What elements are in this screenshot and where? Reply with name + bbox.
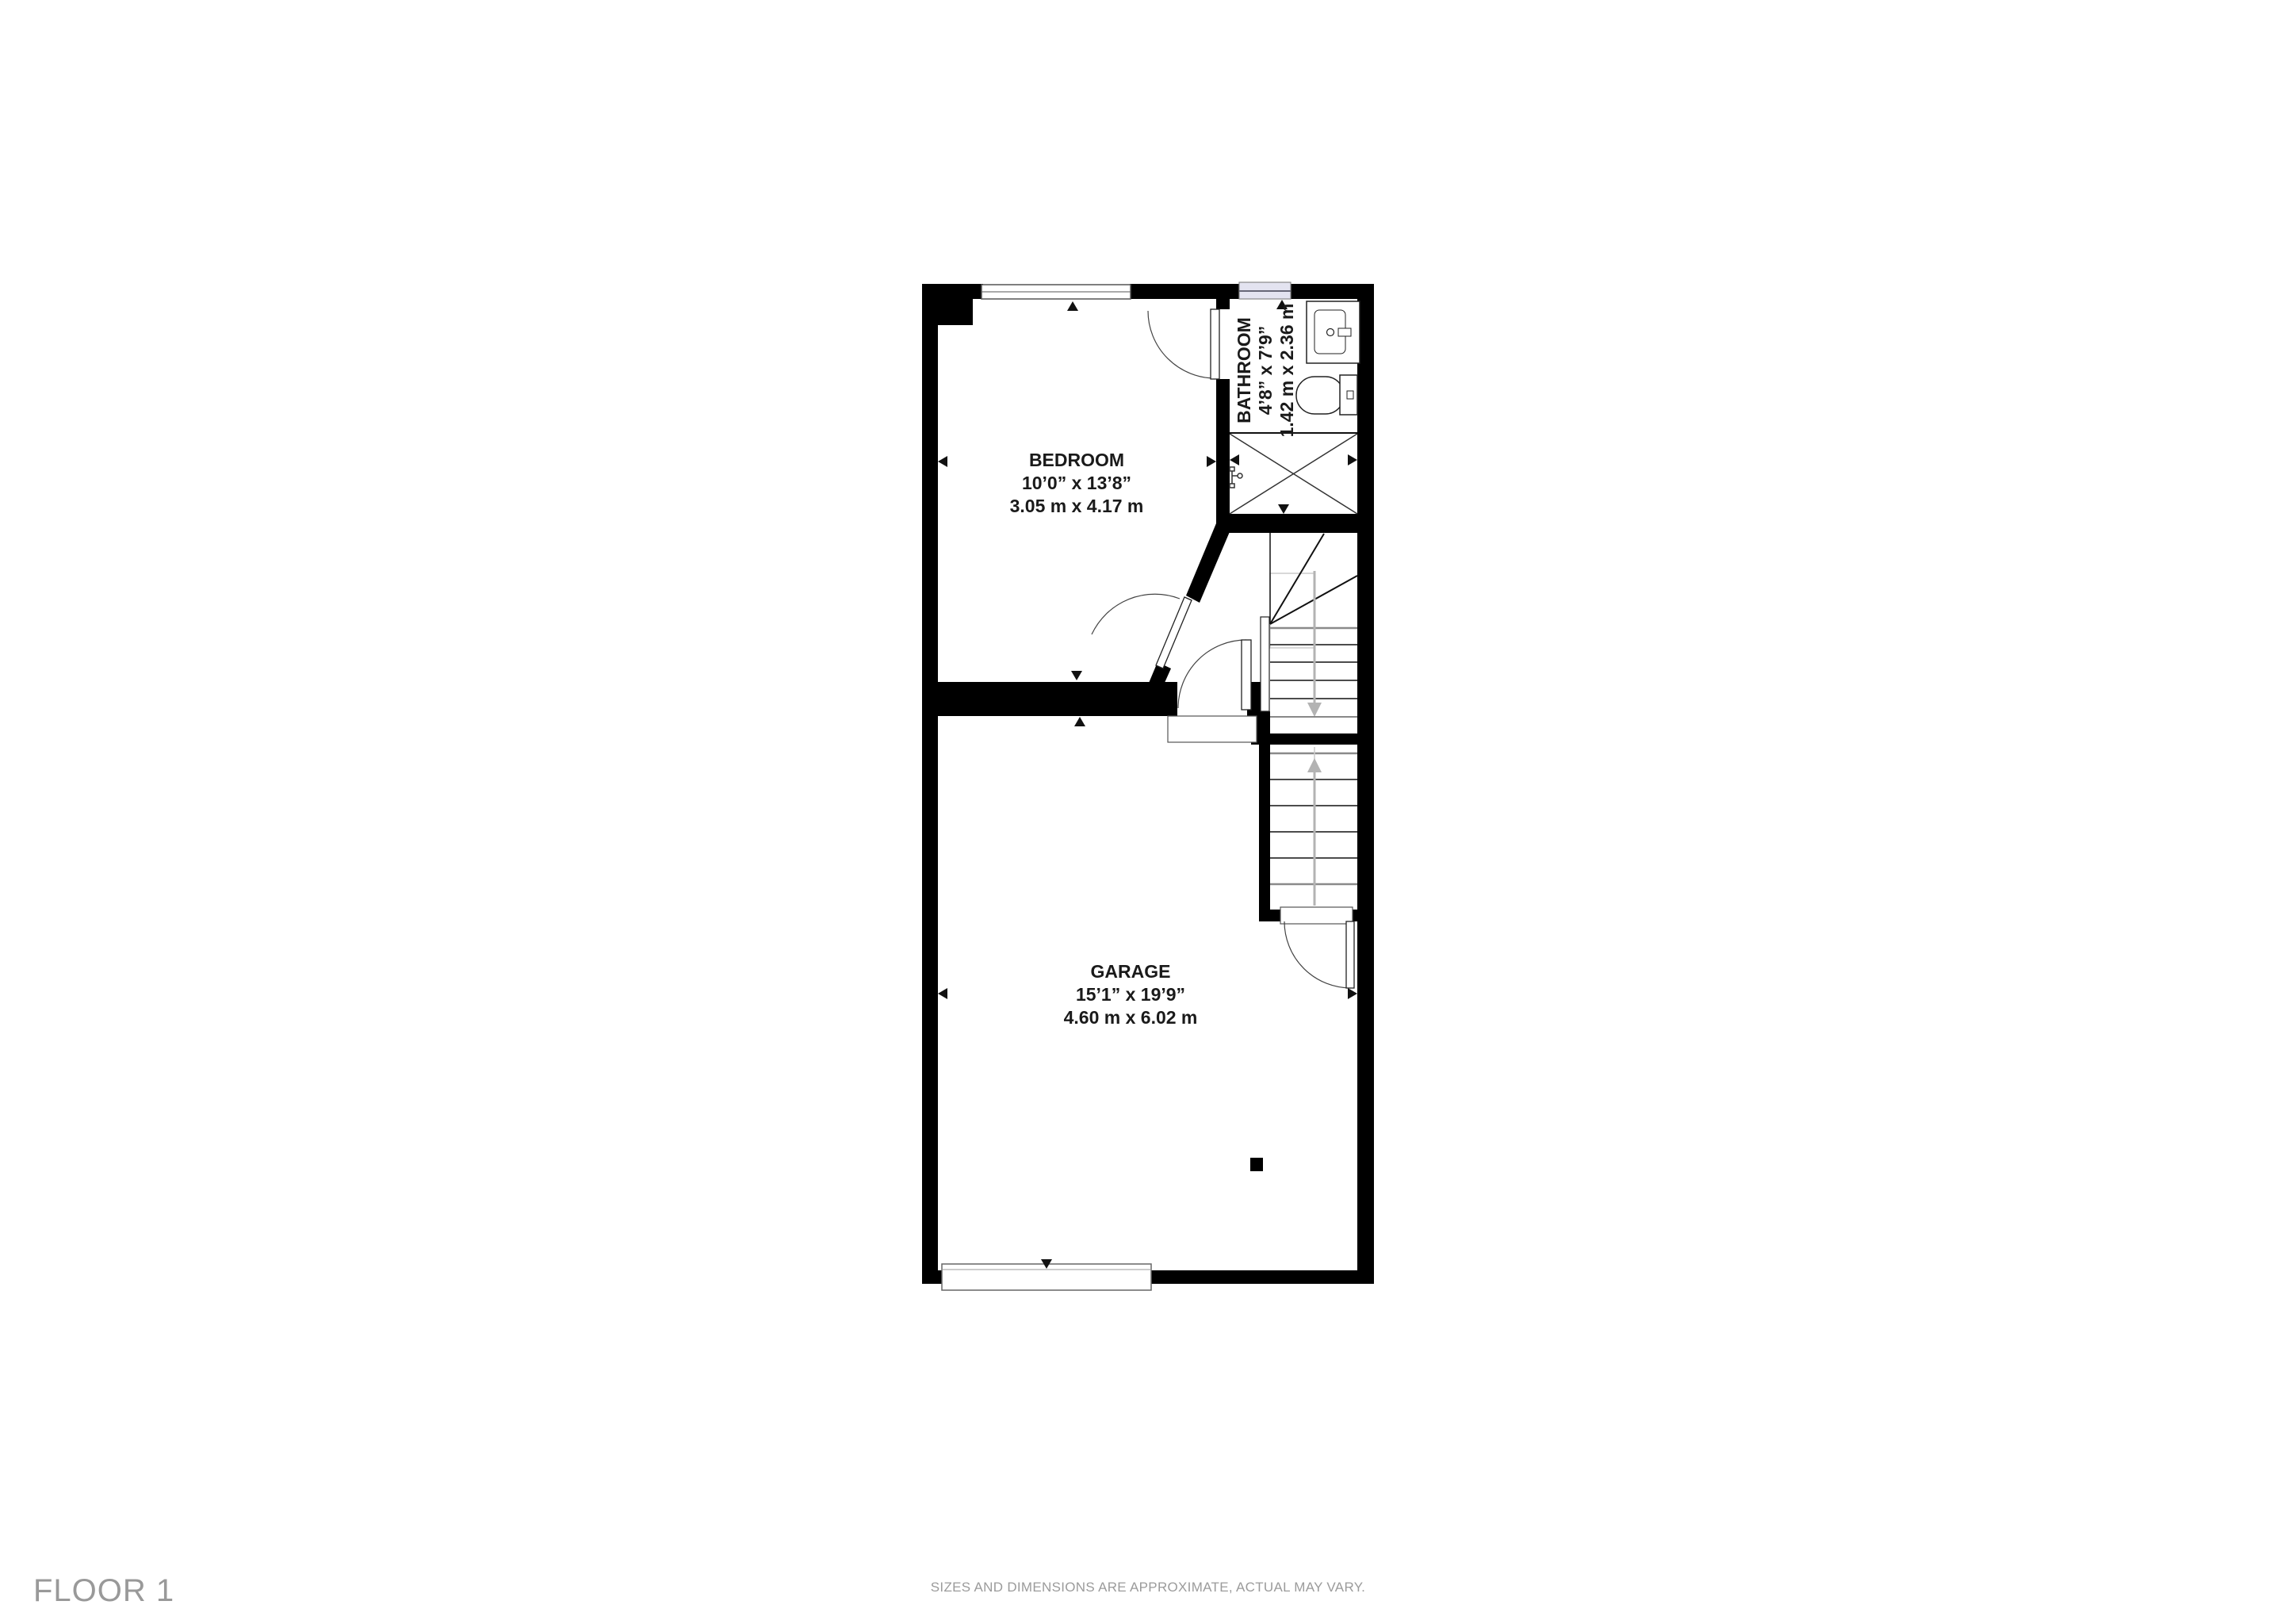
wall-left	[922, 284, 938, 1284]
stair-winder-1	[1270, 534, 1324, 624]
bathroom-name: BATHROOM	[1234, 317, 1254, 423]
wall-bed-bath-top	[1216, 299, 1230, 309]
bedroom-window	[982, 285, 1131, 299]
garage-post	[1250, 1158, 1263, 1171]
bedroom-name: BEDROOM	[1029, 450, 1124, 470]
stair-arrow-down	[1307, 571, 1322, 717]
stair-handrail	[1261, 617, 1269, 711]
bedroom-size-imperial: 10’0” x 13’8”	[1022, 473, 1131, 493]
stairs-garage-threshold	[1280, 907, 1353, 924]
bedroom-size-metric: 3.05 m x 4.17 m	[1010, 496, 1144, 516]
garage-name: GARAGE	[1091, 961, 1171, 982]
wall-bath-bottom	[1216, 514, 1357, 533]
dimension-markers	[938, 300, 1357, 1269]
exterior-walls	[922, 284, 1374, 1284]
marker-garage-right	[1348, 988, 1357, 999]
staircase	[1261, 533, 1357, 906]
room-labels: BEDROOM 10’0” x 13’8” 3.05 m x 4.17 m BA…	[1010, 304, 1297, 1028]
wall-stair-left	[1259, 745, 1270, 921]
floor-plan-drawing: BEDROOM 10’0” x 13’8” 3.05 m x 4.17 m BA…	[0, 0, 2296, 1624]
wall-top-left	[922, 284, 983, 299]
bedroom-label: BEDROOM 10’0” x 13’8” 3.05 m x 4.17 m	[1010, 450, 1144, 516]
wall-bedroom-garage	[922, 682, 1177, 716]
marker-bedroom-bottom	[1071, 671, 1082, 680]
corner-block	[922, 299, 973, 325]
shower-valve	[1230, 467, 1242, 488]
floor-plan-page: BEDROOM 10’0” x 13’8” 3.05 m x 4.17 m BA…	[0, 0, 2296, 1624]
toilet	[1296, 375, 1357, 415]
hall-garage-door	[1168, 640, 1257, 742]
marker-bathroom-right	[1348, 454, 1357, 465]
marker-bedroom-right	[1207, 456, 1216, 467]
wall-stair-mid	[1270, 733, 1357, 745]
bathroom-label: BATHROOM 4’8” x 7’9” 1.42 m x 2.36 m	[1234, 304, 1297, 438]
bedroom-door	[1092, 594, 1192, 668]
garage-size-metric: 4.60 m x 6.02 m	[1064, 1007, 1198, 1028]
bathroom-size-imperial: 4’8” x 7’9”	[1255, 326, 1276, 416]
marker-bathroom-left	[1230, 454, 1239, 465]
wall-stair-bottom-left	[1259, 910, 1283, 921]
stair-opening-outline	[1270, 573, 1314, 648]
doors	[942, 309, 1354, 1290]
garage-landing-threshold	[1168, 716, 1257, 742]
bathroom-window	[1239, 282, 1291, 299]
sink-vanity	[1307, 301, 1360, 363]
bathroom-size-metric: 1.42 m x 2.36 m	[1276, 304, 1297, 438]
shower	[1230, 434, 1357, 514]
wall-top-mid	[1130, 284, 1239, 299]
marker-bedroom-left	[938, 456, 947, 467]
marker-garage-left	[938, 988, 947, 999]
wall-bed-bath	[1216, 379, 1230, 533]
wall-diagonal-upper	[1186, 523, 1231, 603]
stairs-garage-door	[1280, 907, 1354, 988]
garage-size-imperial: 15’1” x 19’9”	[1076, 984, 1185, 1005]
wall-right	[1357, 284, 1374, 1284]
garage-label: GARAGE 15’1” x 19’9” 4.60 m x 6.02 m	[1064, 961, 1198, 1028]
disclaimer-text: SIZES AND DIMENSIONS ARE APPROXIMATE, AC…	[922, 1580, 1374, 1595]
marker-bathroom-bottom	[1278, 504, 1289, 514]
bathroom-door	[1148, 309, 1219, 379]
floor-title: FLOOR 1	[33, 1573, 174, 1609]
marker-garage-top	[1074, 717, 1085, 726]
wall-top-right	[1291, 284, 1374, 299]
marker-bedroom-top	[1067, 301, 1078, 311]
